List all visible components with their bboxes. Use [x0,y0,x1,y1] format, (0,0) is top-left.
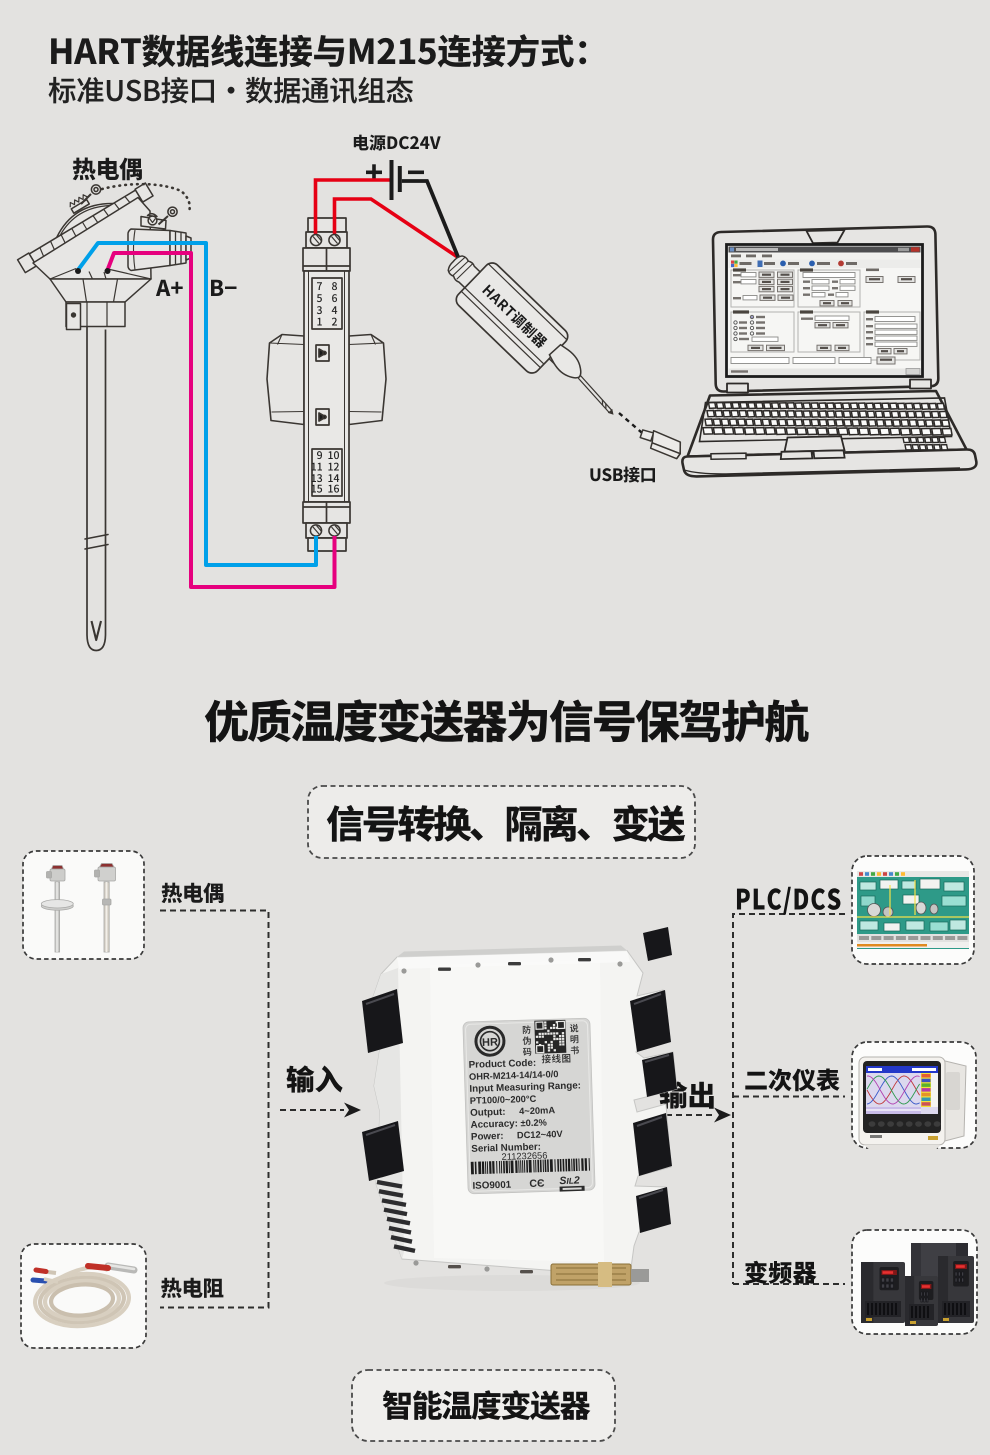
svg-text:Power:: Power: [471,1131,504,1143]
svg-text:SIL2: SIL2 [559,1174,580,1187]
svg-text:Product Code:: Product Code: [469,1058,537,1071]
svg-text:Output:: Output: [470,1107,506,1119]
svg-text:DC12~40V: DC12~40V [517,1129,564,1140]
svg-text:HR: HR [482,1036,498,1048]
svg-text:CЄ: CЄ [529,1178,545,1190]
svg-text:Accuracy:: Accuracy: [470,1118,518,1130]
svg-text:±0.2%: ±0.2% [520,1117,547,1128]
svg-text:4~20mA: 4~20mA [519,1105,556,1116]
svg-text:ISO9001: ISO9001 [472,1180,512,1192]
svg-text:PT100/0~200°C: PT100/0~200°C [470,1094,537,1106]
